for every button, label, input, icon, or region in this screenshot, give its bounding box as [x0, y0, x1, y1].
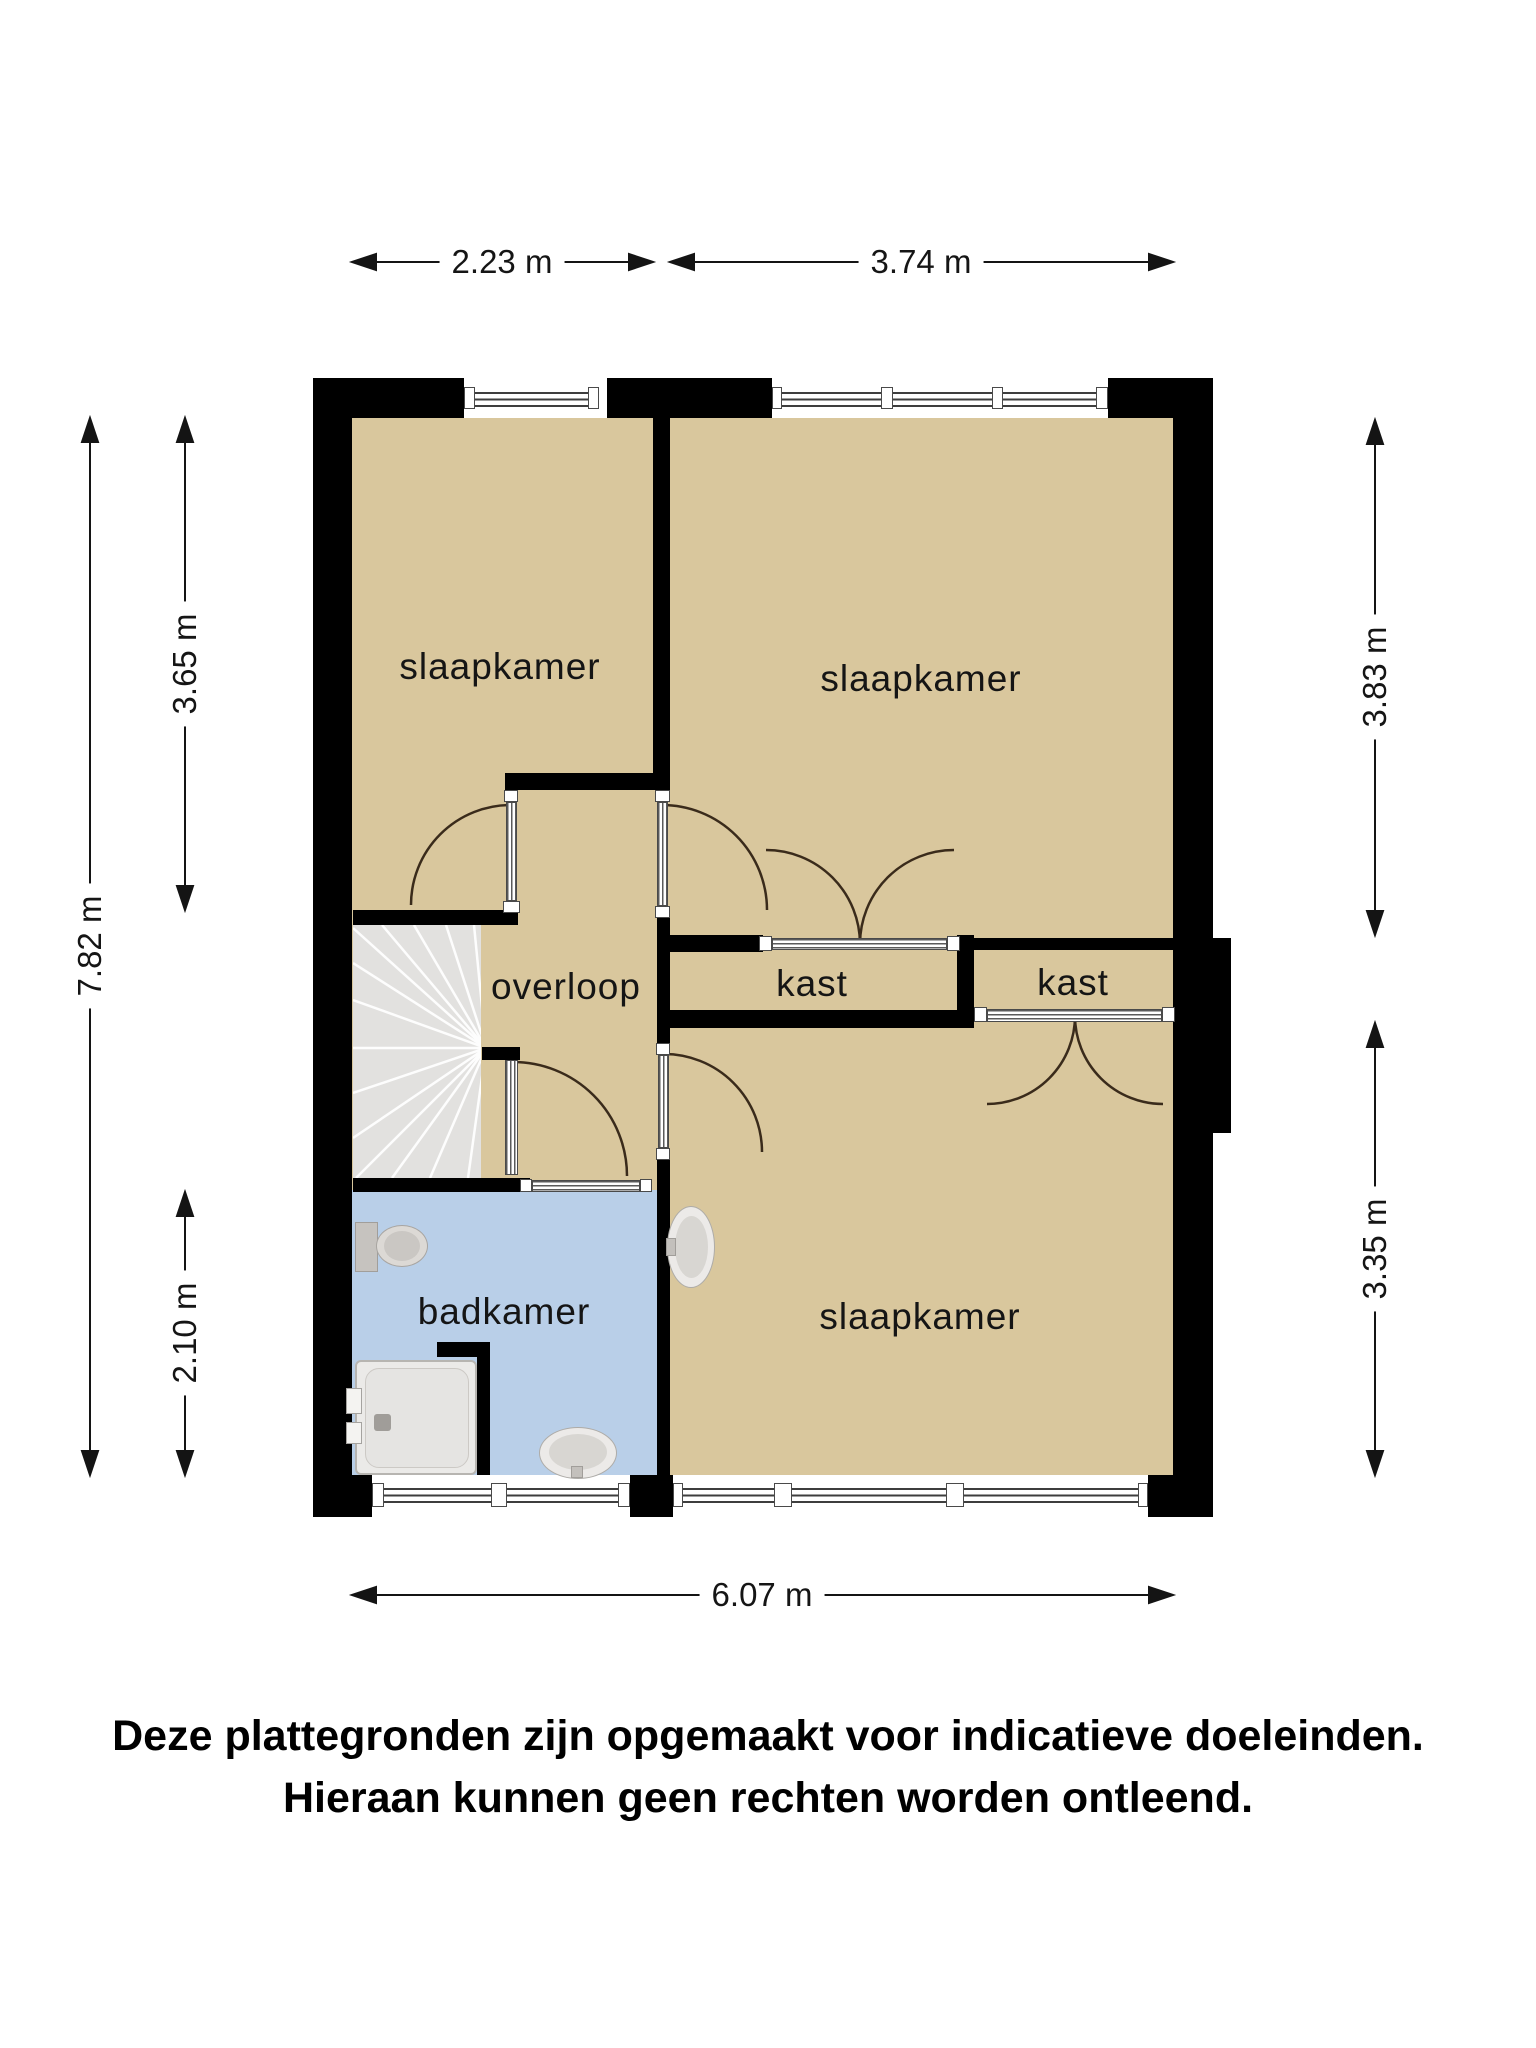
toilet-icon	[355, 1222, 378, 1272]
wall-segment	[1173, 378, 1213, 1517]
disclaimer-line-2: Hieraan kunnen geen rechten worden ontle…	[0, 1774, 1536, 1823]
stairs-treads	[353, 925, 486, 1178]
window	[372, 1475, 630, 1517]
door-frame	[656, 1148, 670, 1160]
window	[772, 378, 1108, 418]
door-leaf	[506, 802, 517, 901]
faucet-icon	[571, 1466, 583, 1478]
door-frame	[655, 790, 670, 802]
wall-segment	[313, 1475, 372, 1517]
wall-segment	[353, 1178, 530, 1192]
room-label-bedroom-br: slaapkamer	[819, 1296, 1020, 1338]
wall-segment	[653, 418, 670, 773]
faucet-icon	[666, 1238, 676, 1256]
door-arc-closet-right-a	[987, 1016, 1075, 1104]
door-arc-bedroom-br	[664, 1054, 762, 1152]
door-arc-bathroom	[513, 1062, 627, 1176]
door-sill	[772, 938, 947, 950]
wall-segment	[1148, 1475, 1213, 1517]
wall-segment	[353, 910, 518, 925]
wall-segment	[630, 1475, 673, 1517]
wall-segment	[667, 935, 763, 952]
window	[673, 1475, 1148, 1517]
dimension-label-left-top: 3.65 m	[166, 602, 204, 727]
wall-segment	[607, 378, 772, 418]
door-frame	[503, 901, 520, 913]
door-frame	[504, 790, 518, 802]
dimension-label-right-top: 3.83 m	[1356, 615, 1394, 740]
wall-segment	[477, 1342, 490, 1475]
door-frame	[1162, 1007, 1175, 1022]
wall-segment	[482, 1047, 520, 1060]
toilet-seat	[384, 1231, 420, 1261]
floor-plan-page: slaapkamer slaapkamer overloop kast kast…	[0, 0, 1536, 2048]
door-arc-bedroom-tr	[662, 805, 767, 910]
dimension-label-right-bottom: 3.35 m	[1356, 1187, 1394, 1312]
disclaimer-line-1: Deze plattegronden zijn opgemaakt voor i…	[0, 1712, 1536, 1761]
room-label-hallway: overloop	[491, 966, 641, 1008]
door-sill	[532, 1180, 640, 1192]
door-frame	[656, 1043, 670, 1055]
dimension-label-top-right: 3.74 m	[859, 243, 984, 281]
door-frame	[655, 906, 670, 918]
wall-segment	[657, 1158, 670, 1475]
wall-segment	[505, 773, 670, 790]
room-label-bedroom-tl: slaapkamer	[399, 646, 600, 688]
door-leaf	[657, 802, 668, 906]
faucet-icon	[346, 1422, 362, 1444]
dimension-label-left-total: 7.82 m	[71, 884, 109, 1009]
door-arc-closet-left-a	[766, 850, 860, 944]
door-arc-bedroom-tl	[411, 805, 511, 905]
door-leaf	[658, 1055, 669, 1148]
door-frame	[974, 1007, 987, 1022]
door-sill	[987, 1009, 1162, 1022]
door-leaf	[505, 1060, 518, 1175]
door-arc-closet-left-b	[860, 850, 954, 944]
faucet-icon	[346, 1388, 362, 1414]
dimension-label-bottom: 6.07 m	[700, 1576, 825, 1614]
door-frame	[520, 1179, 532, 1192]
room-label-bathroom: badkamer	[418, 1291, 591, 1333]
dimension-label-left-bottom: 2.10 m	[166, 1271, 204, 1396]
room-label-closet-right: kast	[1037, 962, 1109, 1004]
wall-segment	[313, 378, 352, 1517]
door-arc-closet-right-b	[1075, 1016, 1163, 1104]
bathtub-icon	[355, 1360, 477, 1475]
room-label-closet-left: kast	[776, 963, 848, 1005]
door-frame	[759, 936, 772, 951]
wall-segment	[1213, 938, 1231, 1133]
wall-segment	[972, 938, 1173, 950]
wall-segment	[667, 1010, 974, 1028]
window	[464, 378, 599, 418]
dimension-label-top-left: 2.23 m	[440, 243, 565, 281]
room-label-bedroom-tr: slaapkamer	[820, 658, 1021, 700]
door-frame	[640, 1179, 652, 1192]
door-frame	[947, 936, 960, 951]
